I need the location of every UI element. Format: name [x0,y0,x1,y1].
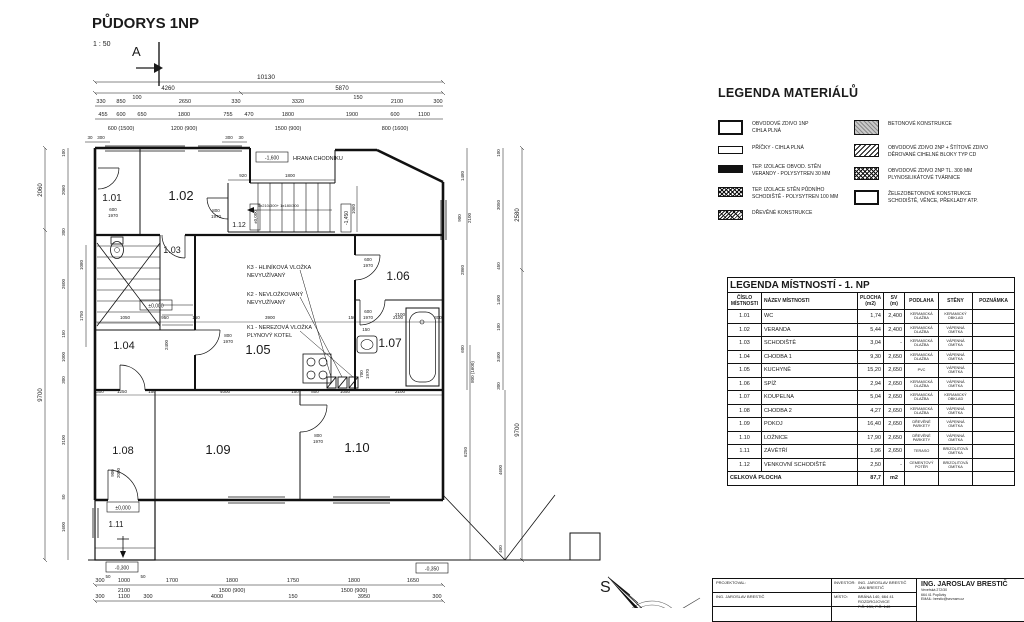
misto-line-2: P.Č. 139, P.Č. 140 [858,604,914,609]
room-label-1-10: 1.10 [344,440,369,455]
dim: 150 [148,389,156,394]
dim: 2100 [395,389,406,394]
legend-item: ŽELEZOBETONOVÉ KONSTRUKCE SCHODIŠTĚ, VĚN… [854,190,1018,205]
dim: 4600 [498,464,503,475]
swatch-concrete [854,120,879,135]
dim: 30 [238,135,244,140]
legend-item: TEP. IZOLACE STĚN PŮDNÍHO SCHODIŠTĚ - PO… [718,186,854,200]
room-label-1-05: 1.05 [245,342,270,357]
washbasin [357,336,377,353]
legend-item: OBVODOVÉ ZDIVO 2NP TL. 300 MM PLYNOSILIK… [854,167,1018,181]
door-label: 900 [110,469,115,477]
dim: 1100 [118,594,130,600]
dim: 30 [87,135,93,140]
floor-plan: PŮDORYS 1NP 1 : 50 A [0,0,710,608]
dim: 1800 [348,578,360,584]
title-block-firm: ING. JAROSLAV BRESTIČ Veveřská 272/30 66… [917,579,1023,621]
door-label: 800 [224,333,232,338]
room-label-1-12: 1.12 [232,222,246,229]
dim: 1750 [79,310,84,321]
level-minus-350: -0,350 [425,567,439,573]
dim: 1800 [282,112,294,118]
investor-label: INVESTOR: [834,580,856,591]
dim: 1000 [61,351,66,362]
dim: 2100 [391,99,403,105]
dim: 2860 [460,264,465,275]
dim: 755 [223,112,232,118]
dim: 2060 [61,184,66,195]
room-table-heading: LEGENDA MÍSTNOSTÍ - 1. NP [728,278,1015,293]
dim: 1080 [79,259,84,270]
dim: 100 [132,95,141,101]
dim: 2100 [395,312,406,317]
entry-arrow [117,536,129,558]
projektoval-label: PROJEKTOVAL: [713,579,831,593]
dim: 1800 [226,578,238,584]
dim: 850 [116,99,125,105]
door-label: 1970 [108,213,119,218]
annotation-k2: K2 - NEVLOŽKOVANÝ [247,290,303,298]
dim: 3900 [265,315,276,320]
door-label: 600 [109,207,117,212]
dim: 330 [231,99,240,105]
dim: 300 [433,99,442,105]
dim: 470 [244,112,253,118]
door-label: 1970 [363,315,374,320]
interior-staircase [97,243,193,326]
door-label: 800 [212,208,220,213]
dim: 1800 [178,112,190,118]
legend-materials-heading: LEGENDA MATERIÁLŮ [718,86,1018,100]
legend-item: OBVODOVÉ ZDIVO 2NP + ŠTÍTOVÉ ZDIVO DĚROV… [854,144,1018,158]
dim: 800 (1600) [470,361,475,383]
annotation-k1: K1 - NEREZOVÁ VLOŽKA [247,323,312,331]
dim: 920 [239,173,247,178]
swatch-brick-2np [854,144,879,157]
dim: 300 [95,578,104,584]
outer-walls [95,148,443,500]
table-row: 1.07KOUPELNA5,042,650KERAMICKÁ DLAŽBAKER… [728,391,1015,405]
annotation-k3b: NEVYUŽÍVANÝ [247,271,286,279]
dim: 1750 [287,578,299,584]
dim: 150 [61,330,66,338]
title-block-projektoval: PROJEKTOVAL: ING. JAROSLAV BRESTIČ [713,579,832,621]
dim: 300 [61,228,66,236]
level-zero-stair: ±0,000 [148,304,163,310]
stair-note: 5x210/300+ 1x180/300 [258,203,300,208]
dim: 10130 [257,74,275,81]
room-table-body: 1.01WC1,742,400KERAMICKÁ DLAŽBAKERAMICKÝ… [728,310,1015,472]
table-row: 1.05KUCHYNĚ15,202,650PVCVÁPENNÁ OMÍTKA [728,364,1015,378]
table-row: 1.09POKOJ16,402,650DŘEVĚNÉ PARKETYVÁPENN… [728,418,1015,432]
legend-materials-left-column: OBVODOVÉ ZDIVO 1NP CIHLA PLNÁ PŘÍČKY - C… [718,120,854,229]
table-row: 1.12VENKOVNÍ SCHODIŠTĚ2,50-CEMENTOVÝ POT… [728,458,1015,472]
dim: 6250 [463,446,468,457]
title-block: PROJEKTOVAL: ING. JAROSLAV BRESTIČ INVES… [712,578,1024,622]
total-label: CELKOVÁ PLOCHA [728,472,858,486]
room-label-1-07: 1.07 [378,336,402,350]
dim: 3320 [292,99,304,105]
dim: 1800 [285,173,296,178]
dim: 1500 (900) [275,126,302,132]
dim: 1400 [496,294,501,305]
dim: 330 [96,99,105,105]
dim: 1000 [118,578,130,584]
dim: 300 [432,594,441,600]
dim: 4260 [161,86,175,92]
dim: 1060 [351,203,356,214]
table-row: 1.02VERANDA5,442,400KERAMICKÁ DLAŽBAVÁPE… [728,323,1015,337]
door-label: 600 [364,309,372,314]
dim: 1900 [346,112,358,118]
room-label-1-11: 1.11 [109,520,125,529]
swatch-gas-silicate [854,167,879,180]
door-swings [98,168,385,500]
door-label: 600 [364,257,372,262]
dim: 1200 (900) [171,126,198,132]
dim: 600 [460,345,465,353]
swatch-insulation-100 [718,187,743,197]
door-label: 1970 [211,214,222,219]
level-1450: -1,450 [344,211,350,225]
dim: 2400 [164,339,169,350]
section-mark: A [132,42,163,86]
dim: 50 [61,494,66,500]
table-row: 1.06SPÍŽ2,942,650KERAMICKÁ DLAŽBAVÁPENNÁ… [728,377,1015,391]
door-label: 1970 [363,263,374,268]
table-row: 1.10LOŽNICE17,902,650DŘEVĚNÉ PARKETYVÁPE… [728,431,1015,445]
dim: 600 [390,112,399,118]
dim: 2580 [515,208,521,222]
dim: 50 [140,574,146,579]
dim: 300 [143,594,152,600]
dim: 300 [434,315,442,320]
dim: 2060 [38,183,44,197]
dim: 2650 [179,99,191,105]
dim: 455 [98,112,107,118]
room-label-1-01: 1.01 [102,193,122,204]
dim: 300 [61,376,66,384]
door-label: 2000 [116,467,121,478]
svg-text:A: A [132,44,141,59]
dim: 150 [288,594,297,600]
dim: 150 [291,389,299,394]
dim: 3950 [358,594,370,600]
dim: 3100 [61,434,66,445]
room-label-1-08: 1.08 [112,445,133,457]
room-label-1-09: 1.09 [205,442,230,457]
door-label: 700 [359,370,364,378]
dim: 300 [95,594,104,600]
dim: 100 [496,149,501,157]
room-legend-table: LEGENDA MÍSTNOSTÍ - 1. NP ČÍSLO MÍSTNOST… [727,277,1015,486]
page-title: PŮDORYS 1NP [92,13,199,32]
investor-name-2: JAN BRESTIČ [858,585,906,590]
total-area: 87,7 [858,472,884,486]
north-arrow: S [600,577,700,608]
dim: 800 [311,389,319,394]
wc-fixture [111,237,124,259]
level-markers [106,152,448,573]
door-label: 1970 [365,368,370,379]
table-row: 1.01WC1,742,400KERAMICKÁ DLAŽBAKERAMICKÝ… [728,310,1015,324]
projektoval-name: ING. JAROSLAV BRESTIČ [713,593,831,607]
door-label: 1970 [313,439,324,444]
table-row: 1.08CHODBA 24,272,650KERAMICKÁ DLAŽBAVÁP… [728,404,1015,418]
legend-materials-right-column: BETONOVÉ KONSTRUKCE OBVODOVÉ ZDIVO 2NP +… [854,120,1018,229]
dim: 4000 [211,594,223,600]
dim: 1100 [418,112,430,118]
room-label-1-03: 1.03 [163,245,181,255]
dim: 1600 [61,521,66,532]
dim: 1250 [117,389,128,394]
table-total-row: CELKOVÁ PLOCHA 87,7 m2 [728,472,1015,486]
annotation-k2b: NEVYUŽÍVANÝ [247,298,286,306]
dim: 2600 [61,278,66,289]
level-zero-porch: ±0,000 [115,506,130,512]
misto-label: MÍSTO: [834,594,856,605]
room-label-1-04: 1.04 [113,340,134,352]
legend-item: BETONOVÉ KONSTRUKCE [854,120,1018,135]
dim: 600 [116,112,125,118]
dim: 3050 [496,199,501,210]
dim: 2100 [467,212,472,223]
firm-name: ING. JAROSLAV BRESTIČ [921,581,1019,588]
level-1600: -1,600 [265,156,279,162]
legend-item: OBVODOVÉ ZDIVO 1NP CIHLA PLNÁ [718,120,854,135]
dim: 1480 [460,170,465,181]
table-row: 1.11ZÁVĚTŘÍ1,962,650TERASOBRIZOLITOVÁ OM… [728,445,1015,459]
dim: 650 [137,112,146,118]
door-label: 800 [314,433,322,438]
dim: 150 [353,95,362,101]
dim: 150 [192,315,200,320]
title-block-investor: INVESTOR: ING. JAROSLAV BRESTIČ JAN BRES… [832,579,917,621]
drawing-sheet: { "title": {"name": "PŮDORYS 1NP", "scal… [0,0,1024,608]
swatch-wall-1np [718,120,743,135]
dim: 100 [496,323,501,331]
dim: 9700 [515,423,521,437]
total-unit: m2 [884,472,905,486]
dim: 450 [496,262,501,270]
dim: 400 [498,545,503,553]
dim: 50 [105,574,111,579]
firm-email: EMAIL: brestic@seznam.cz [921,597,1019,602]
dim: 5870 [335,86,349,92]
table-row: 1.03SCHODIŠTĚ3,04-KERAMICKÁ DLAŽBAVÁPENN… [728,337,1015,351]
legend-item: TEP. IZOLACE OBVOD. STĚN VERANDY - POLYS… [718,163,854,177]
dim: 4000 [220,389,231,394]
dim: 300 [97,135,105,140]
annotation-hrana-chodniku: HRANA CHODNÍKU [293,155,343,162]
dim: 900 [457,214,462,222]
drawing-scale: 1 : 50 [93,41,111,48]
annotation-k3: K3 - HLINÍKOVÁ VLOŽKA [247,263,312,271]
dim: 950 [161,315,169,320]
compass-north-label: S [600,579,611,596]
room-label-1-06: 1.06 [386,269,410,283]
legend-item: DŘEVĚNÉ KONSTRUKCE [718,209,854,220]
legend-item: PŘÍČKY - CIHLA PLNÁ [718,144,854,154]
dim: 1050 [120,315,131,320]
level-minus-300: -0,300 [115,566,129,572]
misto-line-1: BRÁNA 140, 664 41 ROZDROJOVICE [858,594,914,604]
room-label-1-02: 1.02 [168,188,193,203]
swatch-reinforced-concrete [854,190,879,205]
dim: 150 [362,327,370,332]
dim: 9700 [38,388,44,402]
terrain-lines [88,495,600,560]
table-row: 1.04CHODBA 19,302,650KERAMICKÁ DLAŽBAVÁP… [728,350,1015,364]
annotation-k1b: PLYNOVÝ KOTEL [247,332,292,339]
door-label: 1970 [223,339,234,344]
legend-materials: LEGENDA MATERIÁLŮ OBVODOVÉ ZDIVO 1NP CIH… [718,86,1018,229]
dim: 100 [61,149,66,157]
swatch-partition [718,146,743,154]
dim: 1650 [407,578,419,584]
dim: 150 [348,315,356,320]
level-zero-landing: ±0,000 [253,210,258,224]
dim: 3400 [496,351,501,362]
dim: 300 [225,135,233,140]
dim: 1050 [340,389,351,394]
dim: 1700 [166,578,178,584]
dim: 800 (1600) [382,126,409,132]
dim: 300 [496,382,501,390]
dim: 600 (1500) [108,126,135,132]
swatch-wood [718,210,743,220]
dim: 300 [96,389,104,394]
swatch-insulation-30 [718,165,743,173]
table-header-row: ČÍSLO MÍSTNOSTI NÁZEV MÍSTNOSTI PLOCHA (… [728,293,1015,310]
